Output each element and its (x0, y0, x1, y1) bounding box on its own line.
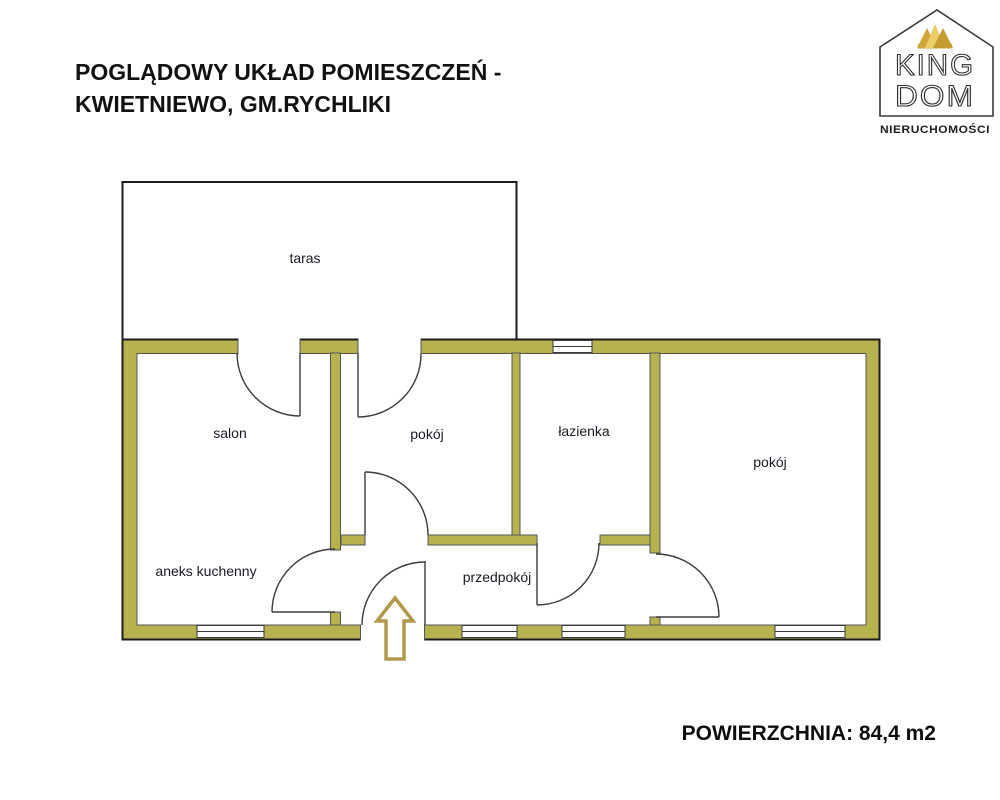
window-hall-left-icon (462, 626, 517, 638)
area-note: POWIERZCHNIA: 84,4 m2 (682, 722, 936, 746)
label-hallway: przedpokój (463, 569, 532, 585)
wall-room-bathroom (512, 353, 520, 535)
label-salon: salon (213, 425, 246, 441)
label-room-right: pokój (753, 454, 786, 470)
wall-hall-top-left (341, 535, 365, 545)
label-kitchenette: aneks kuchenny (155, 563, 256, 579)
window-room-right-icon (775, 626, 845, 638)
wall-salon-hallway-stub (331, 612, 341, 625)
wall-room-right-stub (650, 617, 660, 625)
wall-hall-top-right (600, 535, 650, 545)
window-bathroom-icon (553, 341, 592, 353)
wall-bathroom-room (650, 353, 660, 553)
window-kitchen-icon (197, 626, 264, 638)
label-bathroom: łazienka (558, 423, 609, 439)
label-terrace: taras (289, 250, 320, 266)
wall-salon-hallway (331, 353, 341, 550)
window-hall-right-icon (562, 626, 625, 638)
label-room-middle: pokój (410, 426, 443, 442)
wall-hall-top-mid (428, 535, 537, 545)
floor-plan (0, 0, 1000, 800)
